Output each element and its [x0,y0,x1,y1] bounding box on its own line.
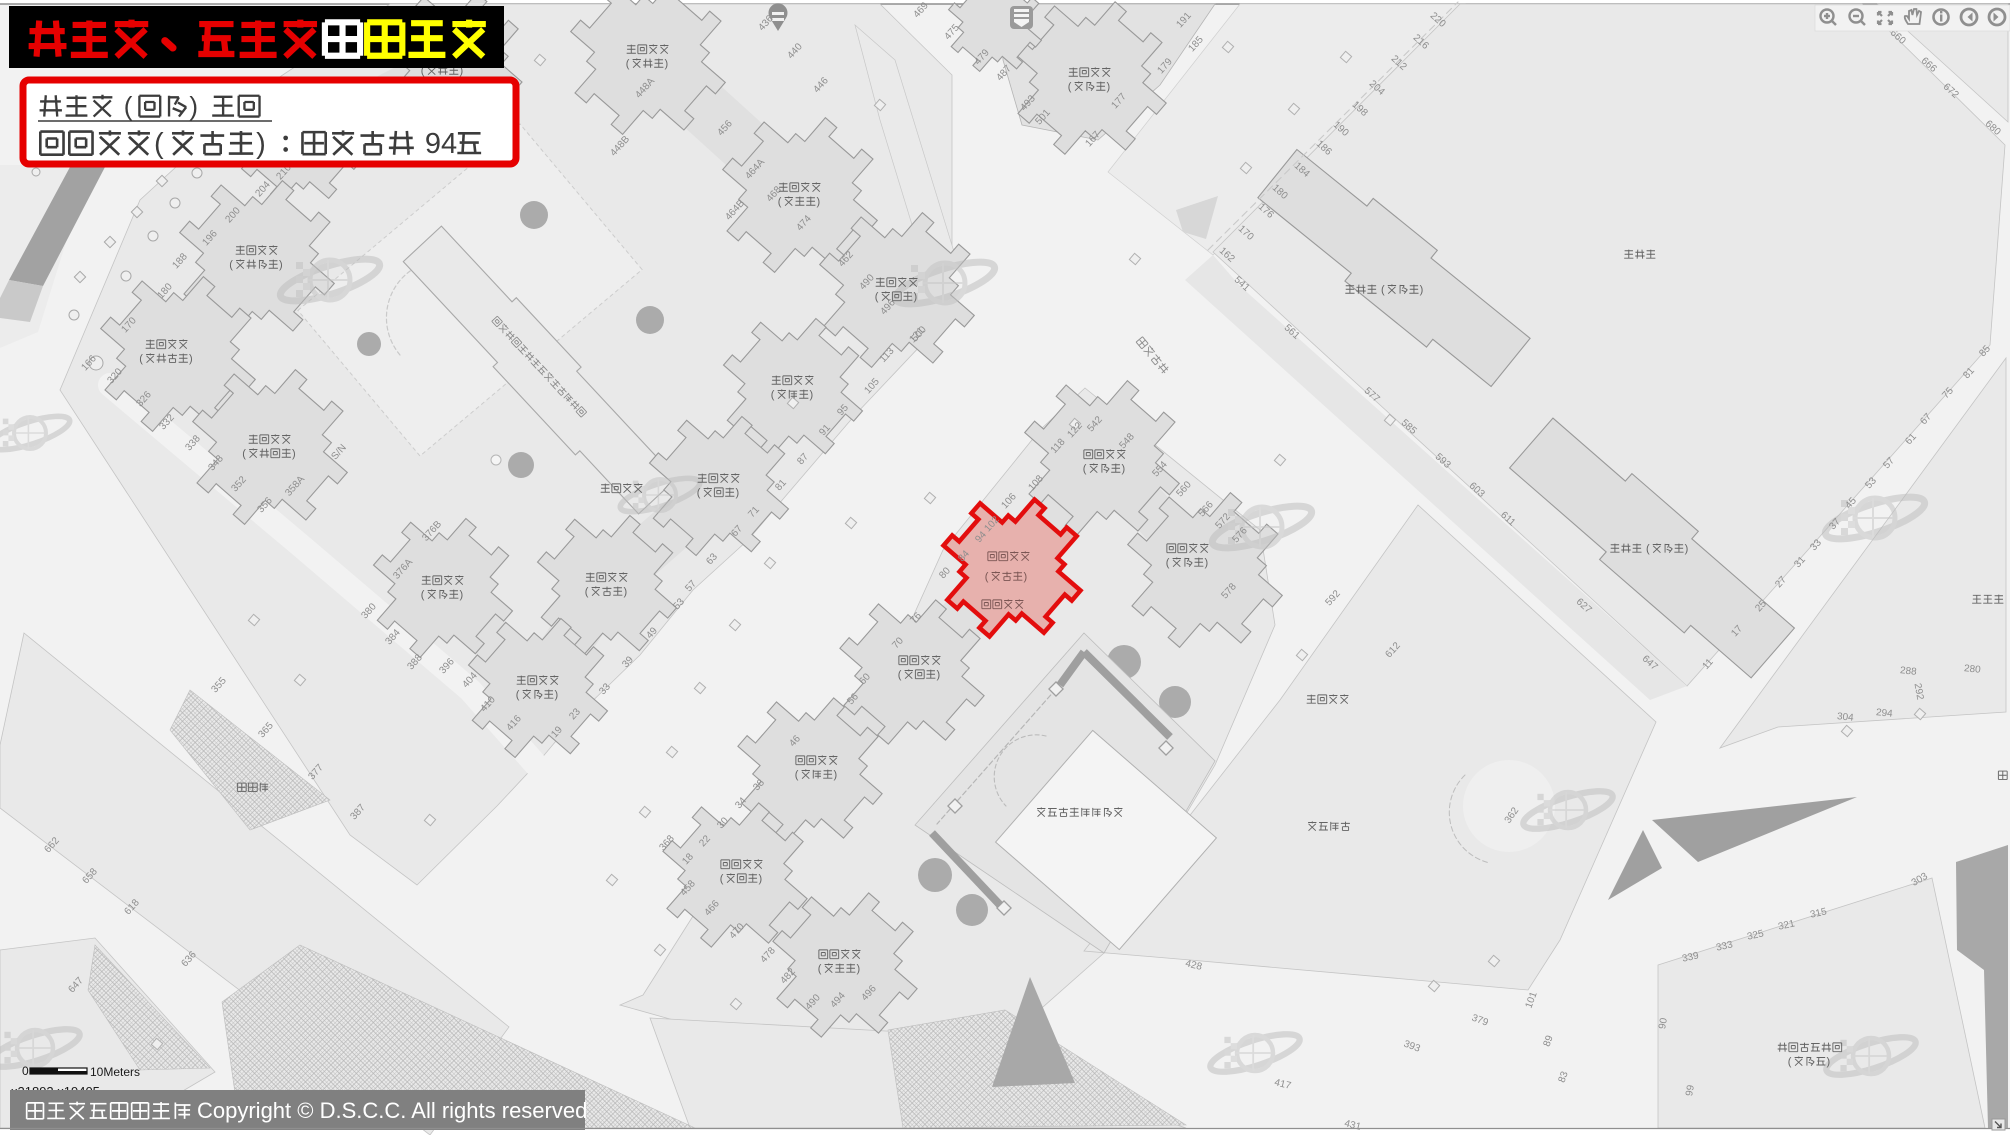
svg-text:): ) [810,389,814,401]
svg-text:(: ( [242,448,246,460]
svg-text:): ) [817,196,821,208]
svg-text:10Meters: 10Meters [90,1065,140,1079]
svg-text:280: 280 [1963,663,1981,676]
svg-text:(: ( [585,586,589,598]
svg-text:): ) [256,128,266,160]
svg-text:(: ( [1068,81,1072,93]
svg-text:304: 304 [1836,711,1854,724]
svg-text:): ) [1420,284,1424,296]
svg-text:(: ( [421,589,425,601]
svg-text:(: ( [1381,284,1385,296]
svg-text:(: ( [771,389,775,401]
svg-text:(: ( [626,58,630,70]
svg-text:): ) [1122,463,1126,475]
svg-text:): ) [736,487,740,499]
svg-text:(: ( [1166,557,1170,569]
svg-text:(: ( [154,128,164,160]
svg-text:(: ( [818,963,822,975]
svg-text:): ) [1685,543,1689,555]
svg-text:(: ( [139,353,143,365]
svg-text:): ) [292,448,296,460]
svg-text:(: ( [1646,543,1650,555]
svg-text:Copyright © D.S.C.C. All right: Copyright © D.S.C.C. All rights reserved [197,1098,587,1123]
svg-text:): ) [914,291,918,303]
svg-text:): ) [1205,557,1209,569]
svg-text:): ) [937,669,941,681]
svg-text:(: ( [516,689,520,701]
svg-text:): ) [857,963,861,975]
svg-text:): ) [1024,571,1028,583]
svg-text:0: 0 [22,1064,29,1078]
svg-text:(: ( [720,873,724,885]
svg-text:): ) [555,689,559,701]
svg-text:): ) [834,769,838,781]
svg-text:288: 288 [1899,665,1917,678]
svg-text:): ) [189,91,198,121]
svg-text:): ) [1827,1056,1831,1068]
svg-text:(: ( [697,487,701,499]
svg-text:(: ( [229,259,233,271]
svg-text:(: ( [985,571,989,583]
svg-text:94: 94 [425,128,457,160]
svg-text:): ) [279,259,283,271]
svg-text:): ) [189,353,193,365]
svg-text:(: ( [795,769,799,781]
svg-text:(: ( [898,669,902,681]
svg-text:(: ( [1788,1056,1792,1068]
svg-text:): ) [759,873,763,885]
svg-text:): ) [624,586,628,598]
svg-text:): ) [665,58,669,70]
svg-text:(: ( [124,91,133,121]
svg-text:(: ( [1083,463,1087,475]
svg-text:(: ( [875,291,879,303]
svg-text:): ) [460,589,464,601]
svg-text:294: 294 [1875,707,1893,720]
svg-text:(: ( [778,196,782,208]
svg-text:): ) [1107,81,1111,93]
